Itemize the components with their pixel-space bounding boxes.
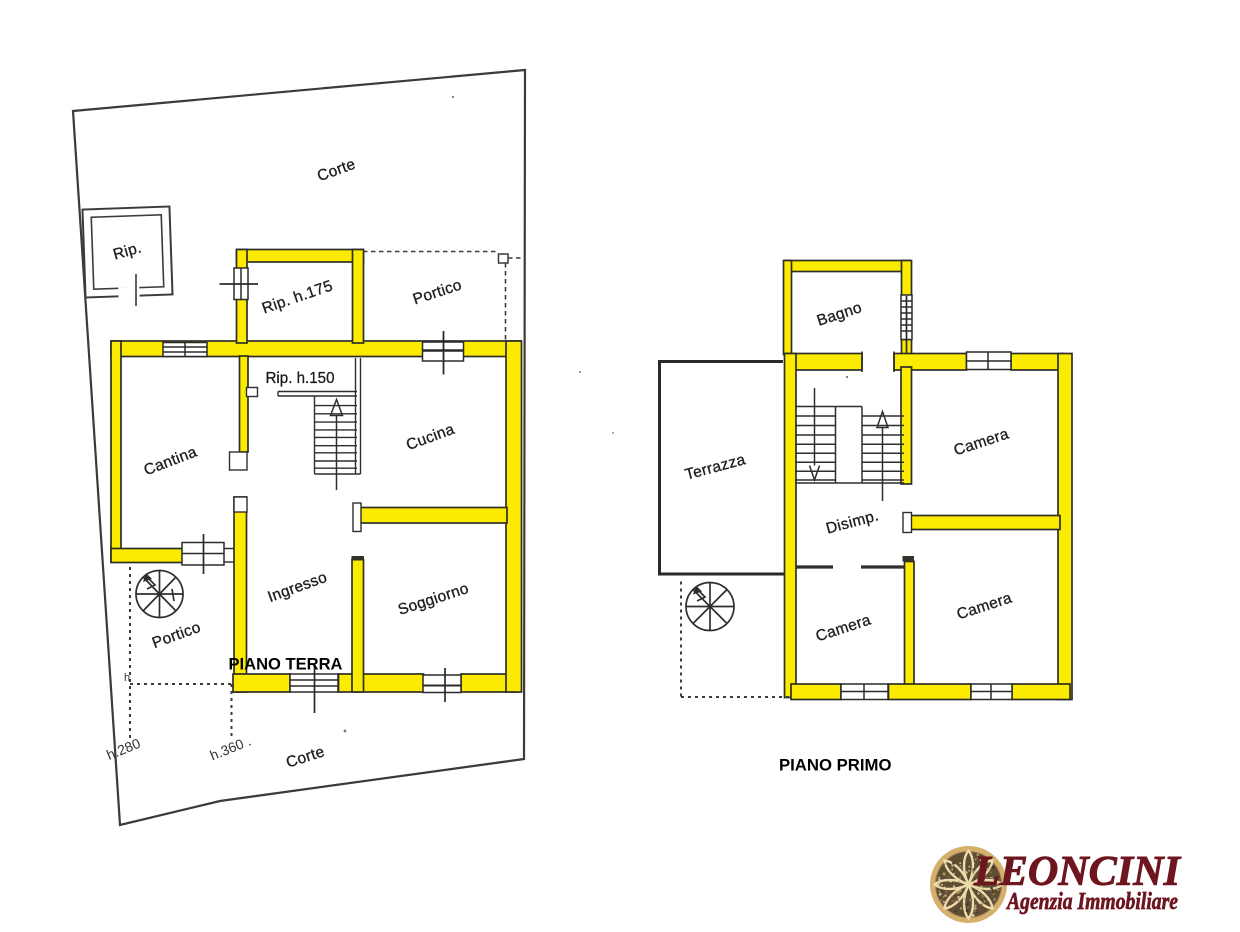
- svg-text:Cucina: Cucina: [404, 421, 457, 454]
- svg-text:PIANO TERRA: PIANO TERRA: [229, 655, 343, 674]
- svg-text:Ingresso: Ingresso: [266, 569, 330, 606]
- svg-text:Camera: Camera: [952, 426, 1011, 460]
- svg-text:Camera: Camera: [814, 612, 873, 646]
- svg-text:Soggiorno: Soggiorno: [396, 580, 471, 619]
- svg-text:h: h: [124, 672, 130, 684]
- svg-text:Disimp.: Disimp.: [824, 507, 880, 537]
- svg-text:Rip. h.150: Rip. h.150: [266, 370, 335, 387]
- svg-text:h.360 .: h.360 .: [208, 732, 254, 763]
- svg-text:h.280: h.280: [104, 735, 143, 763]
- svg-text:Portico: Portico: [150, 619, 203, 652]
- svg-text:Agenzia Immobiliare: Agenzia Immobiliare: [1005, 888, 1178, 915]
- svg-text:Camera: Camera: [955, 590, 1014, 624]
- svg-text:PIANO PRIMO: PIANO PRIMO: [779, 756, 892, 775]
- svg-text:Portico: Portico: [411, 277, 464, 309]
- svg-text:Rip. h.175: Rip. h.175: [260, 277, 335, 317]
- svg-text:Bagno: Bagno: [815, 299, 864, 329]
- svg-text:Corte: Corte: [315, 156, 358, 185]
- svg-text:Corte: Corte: [284, 743, 327, 771]
- svg-text:Cantina: Cantina: [142, 443, 200, 479]
- svg-text:Terrazza: Terrazza: [683, 451, 747, 483]
